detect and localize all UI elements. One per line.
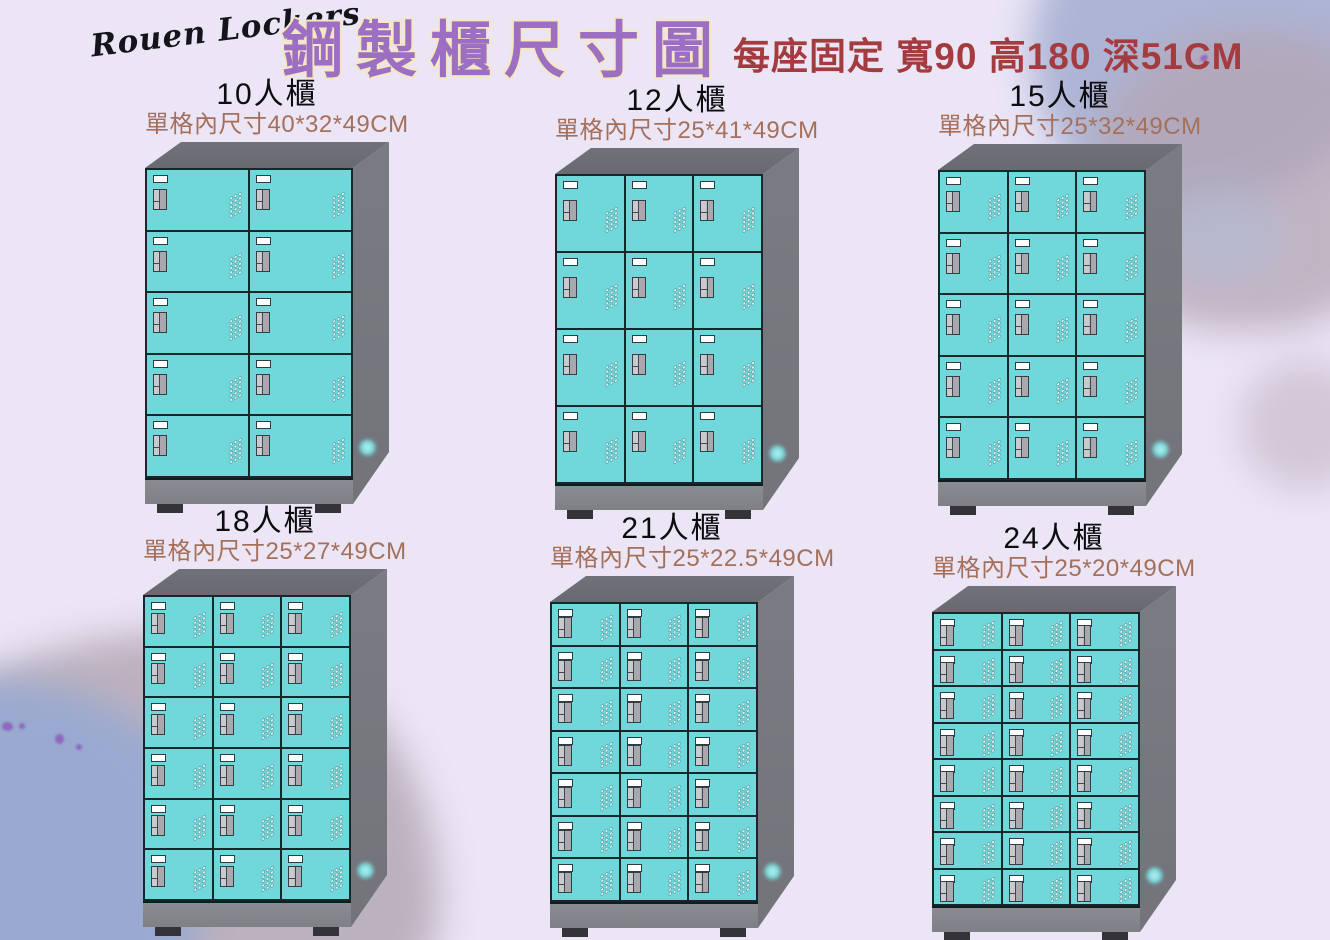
locker-door (250, 416, 351, 476)
locker-door (147, 355, 248, 415)
locker-count-label: 18人櫃 (143, 505, 387, 539)
door-vent-holes-icon (1056, 192, 1069, 220)
door-lock-handle (695, 617, 709, 638)
door-name-tag (563, 412, 578, 420)
cabinet-foot (944, 932, 970, 940)
locker-door (940, 357, 1007, 417)
locker-size-poster: { "header": { "logo": "Rouen Lockers", "… (0, 0, 1330, 940)
door-name-tag (695, 652, 710, 660)
door-vent-holes-icon (988, 439, 1001, 467)
door-lock-handle (1083, 253, 1097, 274)
door-name-tag (558, 609, 573, 617)
door-lock-handle (1009, 844, 1023, 865)
locker-door (626, 176, 693, 251)
door-vent-holes-icon (600, 698, 613, 726)
locker-door (557, 330, 624, 405)
door-lock-handle (940, 844, 954, 865)
door-name-tag (1015, 423, 1030, 431)
cabinet-base (145, 478, 353, 504)
door-vent-holes-icon (988, 254, 1001, 282)
door-lock-handle (627, 660, 641, 681)
door-lock-handle (695, 702, 709, 723)
locker-door (1003, 651, 1070, 686)
door-lock-handle (558, 702, 572, 723)
locker-door (694, 407, 761, 482)
door-vent-holes-icon (193, 662, 206, 690)
door-vent-holes-icon (668, 826, 681, 854)
door-vent-holes-icon (330, 712, 343, 740)
locker-door (1009, 234, 1076, 294)
door-vent-holes-icon (332, 437, 345, 465)
cabinet-front-face (938, 170, 1146, 506)
locker-door (145, 597, 212, 646)
door-lock-handle (940, 808, 954, 829)
door-lock-handle (1015, 437, 1029, 458)
door-vent-holes-icon (332, 375, 345, 403)
door-name-tag (1083, 362, 1098, 370)
door-vent-holes-icon (193, 611, 206, 639)
locker-door (694, 176, 761, 251)
door-vent-holes-icon (332, 314, 345, 342)
door-vent-holes-icon (1119, 839, 1132, 867)
door-lock-handle (695, 745, 709, 766)
compartment-dimensions: 單格內尺寸25*27*49CM (143, 539, 387, 565)
door-name-tag (153, 360, 168, 368)
door-name-tag (558, 737, 573, 745)
door-vent-holes-icon (193, 712, 206, 740)
door-lock-handle (627, 787, 641, 808)
cabinet-top-face (932, 586, 1176, 612)
locker-door (1009, 357, 1076, 417)
cabinet-top-face (550, 576, 794, 602)
door-name-tag (288, 754, 303, 762)
door-lock-handle (627, 830, 641, 851)
door-lock-handle (940, 735, 954, 756)
door-lock-handle (563, 277, 577, 298)
locker-door (689, 774, 756, 815)
door-vent-holes-icon (261, 814, 274, 842)
door-vent-holes-icon (261, 763, 274, 791)
door-vent-holes-icon (1125, 439, 1138, 467)
door-name-tag (627, 864, 642, 872)
door-lock-handle (1009, 881, 1023, 902)
locker-door (934, 760, 1001, 795)
door-grid (555, 174, 763, 484)
locker-door (214, 648, 281, 697)
cabinet-front-face (143, 595, 351, 927)
locker-door (934, 651, 1001, 686)
locker-door (621, 647, 688, 688)
door-vent-holes-icon (673, 436, 686, 464)
door-name-tag (632, 258, 647, 266)
door-vent-holes-icon (229, 252, 242, 280)
door-vent-holes-icon (1119, 729, 1132, 757)
door-lock-handle (940, 881, 954, 902)
locker-door (557, 253, 624, 328)
door-lock-handle (1083, 376, 1097, 397)
cabinet-front-face (555, 174, 763, 510)
locker-door (1077, 418, 1144, 478)
locker-door (147, 293, 248, 353)
door-vent-holes-icon (1125, 316, 1138, 344)
cabinet-base (932, 906, 1140, 932)
door-name-tag (153, 175, 168, 183)
compartment-dimensions: 單格內尺寸25*32*49CM (938, 114, 1182, 140)
locker-door (1071, 687, 1138, 722)
door-vent-holes-icon (193, 763, 206, 791)
door-name-tag (946, 362, 961, 370)
cabinet-foot (313, 927, 339, 936)
locker-door (1003, 760, 1070, 795)
brand-watermark (358, 438, 377, 457)
cabinet-foot (950, 506, 976, 515)
locker-door (145, 749, 212, 798)
door-lock-handle (940, 698, 954, 719)
door-lock-handle (946, 253, 960, 274)
door-vent-holes-icon (982, 766, 995, 794)
locker-section-21: 21人櫃 單格內尺寸25*22.5*49CM (550, 512, 794, 937)
door-lock-handle (288, 714, 302, 735)
door-lock-handle (1083, 437, 1097, 458)
locker-door (621, 689, 688, 730)
locker-door (552, 647, 619, 688)
locker-section-24: 24人櫃 單格內尺寸25*20*49CM (932, 522, 1176, 940)
door-vent-holes-icon (330, 611, 343, 639)
locker-count-label: 15人櫃 (938, 80, 1182, 114)
locker-door (282, 698, 349, 747)
door-lock-handle (1077, 844, 1091, 865)
locker-door (1003, 687, 1070, 722)
door-vent-holes-icon (193, 864, 206, 892)
door-lock-handle (695, 787, 709, 808)
door-lock-handle (1077, 881, 1091, 902)
door-name-tag (700, 335, 715, 343)
door-lock-handle (558, 745, 572, 766)
door-lock-handle (256, 435, 270, 456)
door-lock-handle (288, 663, 302, 684)
door-name-tag (1083, 300, 1098, 308)
door-vent-holes-icon (330, 864, 343, 892)
door-vent-holes-icon (1050, 620, 1063, 648)
cabinet-top-face (555, 148, 799, 174)
door-vent-holes-icon (982, 620, 995, 648)
door-grid (143, 595, 351, 901)
door-vent-holes-icon (330, 662, 343, 690)
locker-door (934, 724, 1001, 759)
door-vent-holes-icon (261, 864, 274, 892)
brand-watermark (1145, 866, 1164, 885)
door-vent-holes-icon (332, 190, 345, 218)
door-vent-holes-icon (1050, 693, 1063, 721)
door-name-tag (632, 335, 647, 343)
door-vent-holes-icon (673, 205, 686, 233)
locker-door (621, 817, 688, 858)
page-title: 鋼製櫃尺寸圖 (282, 0, 726, 89)
door-vent-holes-icon (668, 869, 681, 897)
door-name-tag (288, 653, 303, 661)
door-name-tag (558, 864, 573, 872)
door-vent-holes-icon (600, 656, 613, 684)
door-lock-handle (256, 189, 270, 210)
locker-door (145, 648, 212, 697)
locker-count-label: 24人櫃 (932, 522, 1176, 556)
locker-door (214, 597, 281, 646)
door-vent-holes-icon (600, 784, 613, 812)
door-name-tag (256, 175, 271, 183)
door-lock-handle (220, 613, 234, 634)
door-vent-holes-icon (1119, 656, 1132, 684)
door-lock-handle (151, 714, 165, 735)
locker-door (557, 176, 624, 251)
door-lock-handle (558, 787, 572, 808)
door-name-tag (946, 423, 961, 431)
locker-door (250, 355, 351, 415)
door-vent-holes-icon (1125, 254, 1138, 282)
door-name-tag (220, 703, 235, 711)
locker-door (552, 604, 619, 645)
locker-door (147, 416, 248, 476)
door-lock-handle (627, 872, 641, 893)
door-name-tag (153, 237, 168, 245)
door-name-tag (700, 181, 715, 189)
door-vent-holes-icon (668, 613, 681, 641)
door-vent-holes-icon (1056, 439, 1069, 467)
door-vent-holes-icon (742, 436, 755, 464)
door-vent-holes-icon (1050, 766, 1063, 794)
brand-watermark (768, 444, 787, 463)
door-lock-handle (153, 435, 167, 456)
locker-door (1071, 724, 1138, 759)
door-vent-holes-icon (261, 662, 274, 690)
locker-door (694, 253, 761, 328)
locker-door (621, 604, 688, 645)
compartment-dimensions: 單格內尺寸25*41*49CM (555, 118, 799, 144)
door-name-tag (220, 754, 235, 762)
locker-door (940, 172, 1007, 232)
door-lock-handle (632, 431, 646, 452)
door-name-tag (946, 239, 961, 247)
locker-door (1009, 418, 1076, 478)
door-name-tag (220, 805, 235, 813)
door-name-tag (695, 694, 710, 702)
locker-door (694, 330, 761, 405)
locker-door (934, 870, 1001, 905)
locker-door (689, 647, 756, 688)
cabinet-front-face (932, 612, 1140, 932)
door-lock-handle (220, 815, 234, 836)
door-vent-holes-icon (605, 436, 618, 464)
locker-cabinet-illustration (938, 144, 1182, 515)
locker-door (282, 597, 349, 646)
door-vent-holes-icon (330, 814, 343, 842)
door-vent-holes-icon (1125, 192, 1138, 220)
locker-door (250, 232, 351, 292)
door-name-tag (256, 298, 271, 306)
door-vent-holes-icon (600, 869, 613, 897)
door-vent-holes-icon (600, 826, 613, 854)
locker-door (552, 859, 619, 900)
cabinet-base (938, 480, 1146, 506)
door-lock-handle (563, 200, 577, 221)
locker-count-label: 12人櫃 (555, 84, 799, 118)
locker-door (626, 330, 693, 405)
door-lock-handle (1077, 808, 1091, 829)
door-name-tag (288, 805, 303, 813)
locker-door (250, 293, 351, 353)
locker-door (214, 749, 281, 798)
locker-door (1003, 870, 1070, 905)
locker-door (282, 850, 349, 899)
door-vent-holes-icon (605, 282, 618, 310)
door-vent-holes-icon (1056, 254, 1069, 282)
cabinet-foot (155, 927, 181, 936)
door-lock-handle (1015, 253, 1029, 274)
door-lock-handle (288, 866, 302, 887)
cabinet-base (550, 902, 758, 928)
door-lock-handle (220, 714, 234, 735)
door-vent-holes-icon (1050, 729, 1063, 757)
door-vent-holes-icon (982, 839, 995, 867)
locker-door (1009, 172, 1076, 232)
door-name-tag (700, 258, 715, 266)
fixed-size-note: 每座固定 寬90 高180 深51CM (733, 26, 1243, 80)
cabinet-foot (562, 928, 588, 937)
door-vent-holes-icon (193, 814, 206, 842)
door-lock-handle (695, 872, 709, 893)
door-name-tag (627, 822, 642, 830)
door-name-tag (627, 779, 642, 787)
door-vent-holes-icon (737, 869, 750, 897)
door-vent-holes-icon (1119, 693, 1132, 721)
locker-count-label: 21人櫃 (550, 512, 794, 546)
locker-section-15: 15人櫃 單格內尺寸25*32*49CM (938, 80, 1182, 515)
door-lock-handle (151, 613, 165, 634)
door-vent-holes-icon (982, 729, 995, 757)
door-lock-handle (946, 191, 960, 212)
locker-door (250, 170, 351, 230)
locker-door (145, 698, 212, 747)
door-vent-holes-icon (982, 802, 995, 830)
locker-door (214, 698, 281, 747)
door-vent-holes-icon (1119, 875, 1132, 903)
locker-door (1071, 614, 1138, 649)
cabinet-top-face (143, 569, 387, 595)
door-lock-handle (151, 663, 165, 684)
door-lock-handle (153, 312, 167, 333)
door-lock-handle (627, 617, 641, 638)
door-lock-handle (153, 189, 167, 210)
door-lock-handle (700, 277, 714, 298)
door-name-tag (288, 855, 303, 863)
locker-door (940, 234, 1007, 294)
door-name-tag (151, 805, 166, 813)
door-lock-handle (940, 662, 954, 683)
locker-door (145, 800, 212, 849)
door-name-tag (1015, 177, 1030, 185)
door-vent-holes-icon (673, 359, 686, 387)
paint-speck (55, 734, 64, 744)
door-vent-holes-icon (982, 875, 995, 903)
door-lock-handle (700, 200, 714, 221)
door-name-tag (558, 779, 573, 787)
compartment-dimensions: 單格內尺寸25*22.5*49CM (550, 546, 794, 572)
door-vent-holes-icon (673, 282, 686, 310)
compartment-dimensions: 單格內尺寸40*32*49CM (145, 112, 389, 138)
locker-door (1071, 651, 1138, 686)
door-vent-holes-icon (229, 437, 242, 465)
door-vent-holes-icon (1050, 839, 1063, 867)
door-vent-holes-icon (668, 784, 681, 812)
locker-door (552, 732, 619, 773)
locker-cabinet-illustration (932, 586, 1176, 940)
door-lock-handle (288, 815, 302, 836)
door-name-tag (695, 822, 710, 830)
locker-door (214, 800, 281, 849)
door-name-tag (256, 421, 271, 429)
cabinet-top-face (145, 142, 389, 168)
locker-door (689, 689, 756, 730)
paint-speck (76, 744, 82, 750)
paint-speck (19, 723, 25, 729)
door-name-tag (151, 703, 166, 711)
locker-door (282, 800, 349, 849)
door-name-tag (220, 855, 235, 863)
locker-door (147, 170, 248, 230)
door-name-tag (563, 181, 578, 189)
locker-cabinet-illustration (143, 569, 387, 936)
door-name-tag (153, 298, 168, 306)
locker-door (1071, 870, 1138, 905)
locker-door (1077, 234, 1144, 294)
door-lock-handle (1009, 735, 1023, 756)
door-lock-handle (695, 830, 709, 851)
door-vent-holes-icon (1119, 802, 1132, 830)
door-name-tag (151, 754, 166, 762)
door-vent-holes-icon (737, 784, 750, 812)
door-vent-holes-icon (1119, 620, 1132, 648)
door-vent-holes-icon (330, 763, 343, 791)
door-vent-holes-icon (261, 712, 274, 740)
door-vent-holes-icon (229, 314, 242, 342)
door-name-tag (558, 652, 573, 660)
cabinet-front-face (145, 168, 353, 504)
cabinet-foot (1108, 506, 1134, 515)
door-lock-handle (632, 200, 646, 221)
locker-door (145, 850, 212, 899)
door-name-tag (151, 653, 166, 661)
door-vent-holes-icon (1119, 766, 1132, 794)
door-lock-handle (558, 830, 572, 851)
door-lock-handle (153, 251, 167, 272)
door-name-tag (563, 335, 578, 343)
compartment-dimensions: 單格內尺寸25*20*49CM (932, 556, 1176, 582)
door-vent-holes-icon (742, 359, 755, 387)
door-vent-holes-icon (737, 613, 750, 641)
door-vent-holes-icon (737, 698, 750, 726)
watercolor-splash-right-middle (1240, 360, 1330, 490)
brand-watermark (356, 861, 375, 880)
cabinet-base (555, 484, 763, 510)
door-vent-holes-icon (668, 656, 681, 684)
door-name-tag (946, 300, 961, 308)
locker-door (689, 604, 756, 645)
cabinet-base (143, 901, 351, 927)
door-lock-handle (220, 866, 234, 887)
door-name-tag (1083, 239, 1098, 247)
locker-section-10: 10人櫃 單格內尺寸40*32*49CM (145, 78, 389, 513)
door-name-tag (256, 237, 271, 245)
door-name-tag (151, 602, 166, 610)
